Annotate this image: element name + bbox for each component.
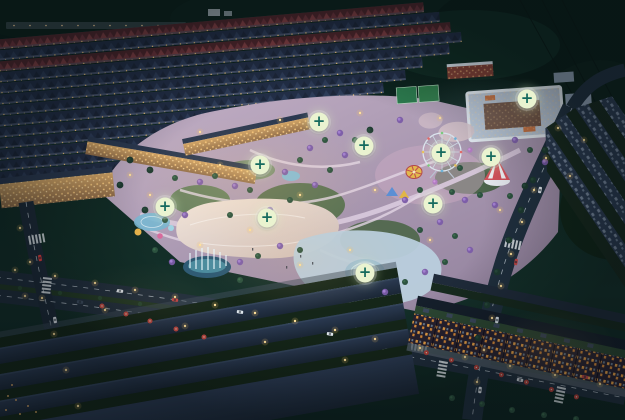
hotspot-marker-3[interactable]: + (355, 137, 374, 156)
plus-icon: + (254, 157, 267, 172)
hotspot-marker-10[interactable]: + (356, 264, 375, 283)
hotspot-layer: + + + + + + + + + + (0, 0, 625, 420)
hotspot-marker-2[interactable]: + (518, 90, 537, 109)
plus-icon: + (427, 196, 440, 211)
plus-icon: + (261, 210, 274, 225)
hotspot-marker-1[interactable]: + (310, 113, 329, 132)
hotspot-marker-7[interactable]: + (156, 198, 175, 217)
plus-icon: + (521, 91, 534, 106)
plus-icon: + (485, 149, 498, 164)
plus-icon: + (359, 265, 372, 280)
masterplan-stage: + + + + + + + + + + (0, 0, 625, 420)
hotspot-marker-4[interactable]: + (432, 144, 451, 163)
plus-icon: + (358, 138, 371, 153)
plus-icon: + (435, 145, 448, 160)
plus-icon: + (313, 114, 326, 129)
plus-icon: + (159, 199, 172, 214)
hotspot-marker-5[interactable]: + (482, 148, 501, 167)
hotspot-marker-6[interactable]: + (251, 156, 270, 175)
hotspot-marker-8[interactable]: + (258, 209, 277, 228)
hotspot-marker-9[interactable]: + (424, 195, 443, 214)
